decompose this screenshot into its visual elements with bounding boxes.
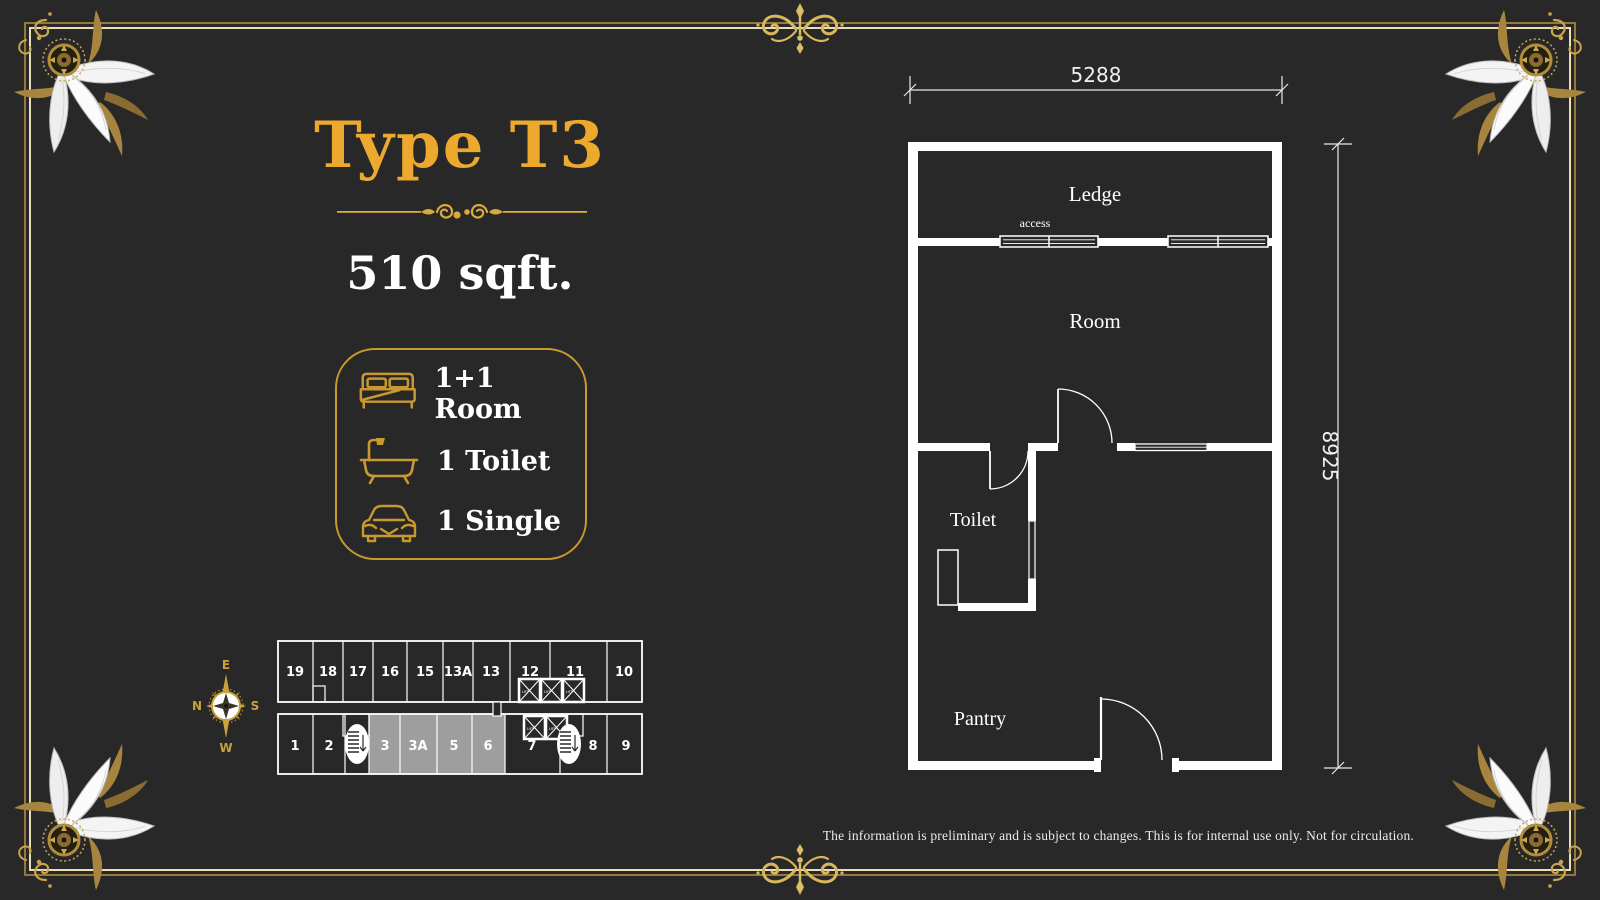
car-icon (357, 499, 421, 545)
compass: E N S W (190, 658, 262, 756)
stair-icon (345, 724, 369, 764)
brochure-page: Type T3 510 sqft. 1+1 Room (0, 0, 1600, 900)
dimension-height-value: 8925 (1318, 431, 1342, 482)
lift-label: LIFT (549, 727, 557, 731)
unit-area: 510 sqft. (240, 246, 680, 300)
room-label-room: Room (1069, 309, 1120, 333)
room-label-pantry: Pantry (954, 708, 1006, 730)
amenity-row-room: 1+1 Room (357, 363, 585, 425)
toilet-door (990, 451, 1028, 489)
entry-door (1101, 697, 1162, 760)
unit-number: 3A (408, 739, 427, 754)
lift-label: LIFT (527, 727, 535, 731)
unit-number: 6 (483, 739, 492, 754)
amenity-label: 1 Toilet (437, 446, 550, 477)
sliding-panel (1029, 521, 1035, 579)
room-door (1058, 389, 1112, 443)
unit-number: 19 (286, 665, 304, 680)
unit-number: 16 (381, 665, 399, 680)
unit-number: 13 (482, 665, 500, 680)
unit-number: 1 (290, 739, 299, 754)
lift-label: LIFT (544, 690, 552, 694)
bathtub-icon (357, 436, 421, 488)
lift-label: LIFT (566, 690, 574, 694)
unit-number: 10 (615, 665, 633, 680)
unit-number: 12 (521, 665, 539, 680)
key-plan: LIFT LIFT LIFT LIFT (277, 640, 643, 776)
unit-number: 9 (621, 739, 630, 754)
unit-number: 3 (380, 739, 389, 754)
compass-label-west: W (219, 741, 232, 755)
window (1135, 444, 1207, 451)
floor-plan: 5288 8925 Ledge access Room Toilet Pantr… (880, 60, 1360, 790)
lift-label: LIFT (522, 690, 530, 694)
amenity-row-parking: 1 Single (357, 499, 585, 545)
louvre-vent (1000, 236, 1098, 247)
room-label-ledge: Ledge (1069, 182, 1121, 206)
compass-label-east: E (222, 658, 230, 672)
compass-label-north: N (192, 699, 202, 713)
unit-number: 5 (449, 739, 458, 754)
stair-icon (557, 724, 581, 764)
lift-box: LIFT (519, 679, 540, 702)
unit-number: 11 (566, 665, 584, 680)
unit-number: 17 (349, 665, 367, 680)
bed-icon (357, 369, 419, 419)
disclaimer-text: The information is preliminary and is su… (714, 828, 1414, 844)
title-divider (337, 198, 587, 228)
amenities-card: 1+1 Room 1 Toilet (335, 348, 587, 560)
louvre-vent (1168, 236, 1268, 247)
unit-number: 18 (319, 665, 337, 680)
lift-box: LIFT (541, 679, 562, 702)
lift-box: LIFT (524, 716, 545, 739)
amenity-label: 1+1 Room (435, 363, 586, 425)
room-label-toilet: Toilet (950, 509, 997, 531)
unit-number: 13A (444, 665, 472, 680)
unit-number: 8 (588, 739, 597, 754)
amenity-row-toilet: 1 Toilet (357, 436, 585, 488)
room-label-access: access (1020, 216, 1051, 230)
lift-box: LIFT (563, 679, 584, 702)
unit-number: 7 (527, 739, 536, 754)
compass-label-south: S (251, 699, 260, 713)
unit-number: 15 (416, 665, 434, 680)
duct-box (938, 550, 958, 605)
unit-type-title: Type T3 (240, 108, 680, 183)
amenity-label: 1 Single (437, 506, 561, 537)
dimension-width-value: 5288 (1071, 63, 1122, 87)
unit-number: 2 (324, 739, 333, 754)
